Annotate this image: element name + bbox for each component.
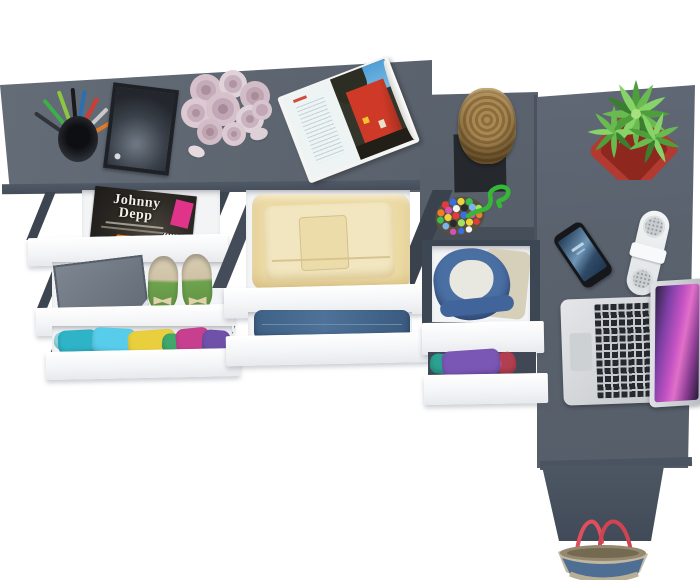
- potted-plant: [578, 62, 690, 180]
- linen-pocket: [299, 215, 350, 271]
- wooden-stool: [458, 88, 516, 164]
- laptop-trackpad: [569, 333, 592, 372]
- picture-frame: [103, 82, 179, 175]
- jeans-seam: [262, 324, 402, 325]
- laptop: [558, 280, 700, 406]
- purple-drawer-front: [424, 373, 549, 405]
- speaker-grill: [641, 213, 667, 239]
- folded-yellow-linens: [252, 194, 410, 290]
- magazine-title: Johnny Depp: [100, 192, 172, 225]
- hoodie-fleece-lining: [449, 259, 494, 301]
- drawer-rail: [26, 192, 55, 240]
- hoodie-drawer-interior: [432, 246, 530, 322]
- magazine-red-dash: [293, 95, 307, 103]
- clothes-drawer-front: [46, 348, 241, 380]
- magazine-text-block: [296, 97, 346, 164]
- phone-lockscreen-text: [576, 248, 585, 255]
- pen-cup: [50, 88, 106, 164]
- magazine-badge: [170, 199, 194, 229]
- jeans-drawer-front: [226, 332, 441, 366]
- desk-return-seam: [534, 95, 537, 240]
- green-flat-shoe: [147, 255, 179, 312]
- shoe-bow: [153, 297, 171, 306]
- laptop-keyboard: [594, 303, 653, 399]
- frame-reflection: [114, 153, 121, 160]
- laptop-display: [654, 284, 699, 403]
- photo-window: [378, 119, 386, 129]
- speaker-strap: [629, 242, 667, 265]
- candy-cord: [460, 176, 524, 226]
- laptop-screen: [649, 278, 700, 407]
- pen-cup-body: [58, 116, 98, 162]
- photo-window: [362, 116, 370, 124]
- laptop-body: [560, 296, 660, 405]
- scene: Johnny Depp: [0, 0, 700, 580]
- tote-bag: [546, 498, 660, 580]
